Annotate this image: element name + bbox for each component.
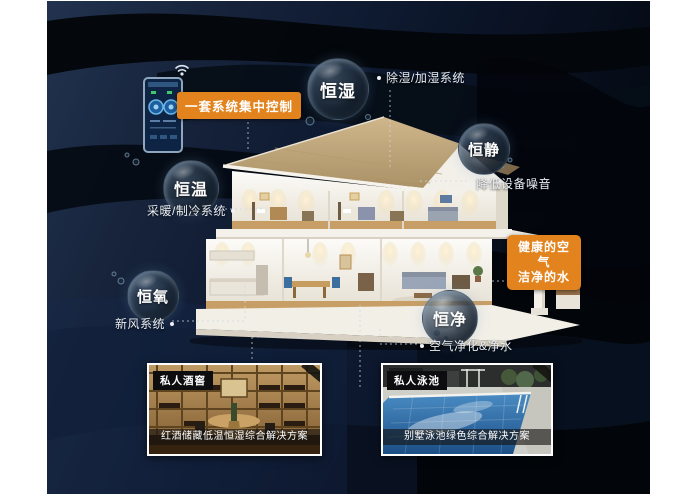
card-wine-cellar: 私人酒窖 红酒储藏低温恒湿综合解决方案 [147,363,322,456]
note-humidity: 除湿/加湿系统 [377,69,465,86]
bullet-dot [377,76,381,80]
note-clean: 空气净化&净水 [420,337,513,354]
note-temp-text: 采暖/制冷系统 [147,202,226,219]
card-pool: 私人泳池 别墅泳池绿色综合解决方案 [381,363,553,456]
bubble-temp-label: 恒温 [174,176,208,200]
note-clean-text: 空气净化&净水 [429,337,513,354]
wine-cellar-photo: 私人酒窖 红酒储藏低温恒湿综合解决方案 [149,365,320,454]
infographic-canvas: 一套系统集中控制 恒湿 恒静 恒温 恒氧 恒净 除湿/加湿系统 降低设备噪音 采… [0,0,700,497]
wifi-icon [172,59,192,77]
bullet-dot [231,209,235,213]
wine-card-caption: 红酒储藏低温恒湿综合解决方案 [149,429,320,445]
note-oxygen: 新风系统 [115,315,174,332]
pool-photo: 私人泳池 别墅泳池绿色综合解决方案 [383,365,551,454]
bullet-dot [467,182,471,186]
note-quiet-text: 降低设备噪音 [476,175,551,192]
highlight-box: 健康的空气 洁净的水 [507,235,581,290]
bubble-quiet: 恒静 [458,123,510,175]
bubble-humidity: 恒湿 [307,58,369,120]
note-temp: 采暖/制冷系统 [147,202,235,219]
bullet-dot [170,322,174,326]
highlight-line1: 健康的空气 [513,240,575,270]
pool-card-tag: 私人泳池 [387,371,447,390]
bubble-clean-label: 恒净 [433,306,467,330]
highlight-line2: 洁净的水 [513,270,575,285]
wine-card-tag: 私人酒窖 [153,371,213,390]
note-quiet: 降低设备噪音 [467,175,551,192]
bubble-oxygen-label: 恒氧 [137,286,169,307]
note-oxygen-text: 新风系统 [115,315,165,332]
bullet-dot [420,344,424,348]
stage: 一套系统集中控制 恒湿 恒静 恒温 恒氧 恒净 除湿/加湿系统 降低设备噪音 采… [47,1,650,494]
controller-label: 一套系统集中控制 [177,92,301,119]
pool-card-caption: 别墅泳池绿色综合解决方案 [383,429,551,445]
bubble-humidity-label: 恒湿 [320,77,356,102]
note-humidity-text: 除湿/加湿系统 [386,69,465,86]
bubble-quiet-label: 恒静 [468,139,500,160]
